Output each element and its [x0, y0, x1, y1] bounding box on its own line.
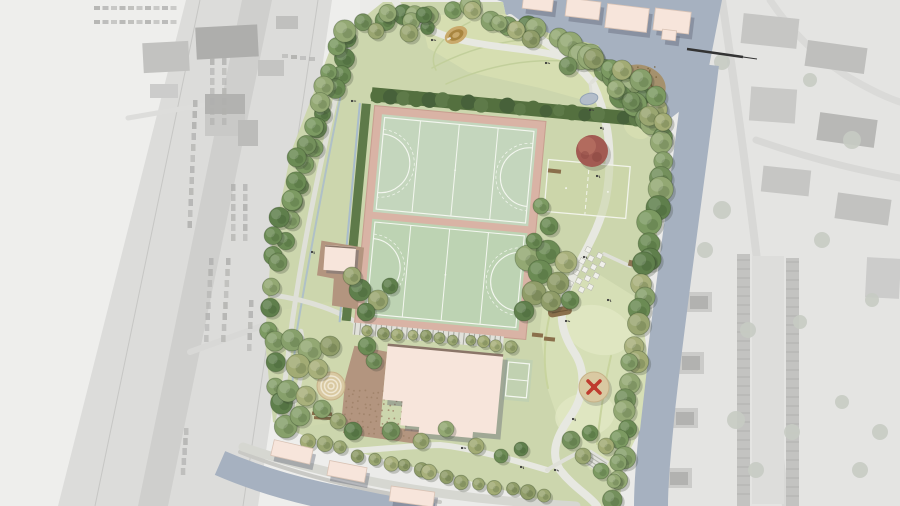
site-plan-rendering	[0, 0, 900, 506]
site-plan	[0, 0, 900, 506]
